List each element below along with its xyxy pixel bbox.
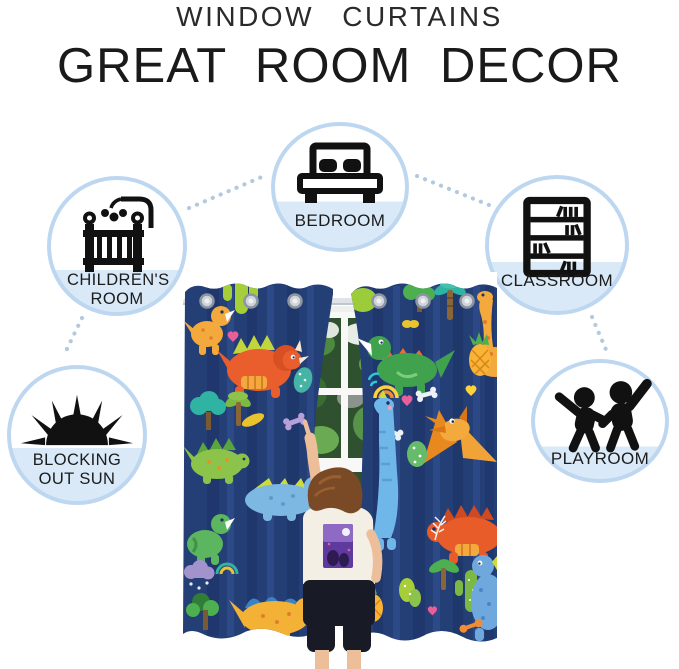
feature-label: PLAYROOM xyxy=(535,449,665,469)
feature-bedroom: BEDROOM xyxy=(271,122,409,252)
crib-icon xyxy=(51,194,183,276)
feature-playroom: PLAYROOM xyxy=(531,359,669,483)
product-photo xyxy=(183,272,497,669)
connector-classroom-playroom xyxy=(592,317,607,352)
child-legs xyxy=(315,650,361,669)
feature-label: CLASSROOM xyxy=(489,271,625,291)
bed-icon xyxy=(275,142,405,208)
feature-childrens-room: CHILDREN'S ROOM xyxy=(47,176,187,316)
page-root: WINDOW CURTAINS GREAT ROOM DECOR BEDROOM xyxy=(0,0,679,669)
connector-bedroom-classroom xyxy=(417,176,489,205)
child-shirt-print xyxy=(323,524,353,568)
bookshelf-icon xyxy=(489,195,625,279)
children-playing-icon xyxy=(535,375,665,455)
sun-icon xyxy=(11,389,143,451)
header-subtitle: WINDOW CURTAINS xyxy=(0,1,679,33)
header: WINDOW CURTAINS GREAT ROOM DECOR xyxy=(0,0,679,94)
page-title: GREAT ROOM DECOR xyxy=(0,38,679,94)
feature-classroom: CLASSROOM xyxy=(485,175,629,315)
feature-blocking-out-sun: BLOCKING OUT SUN xyxy=(7,365,147,505)
spotted-bush-motif xyxy=(407,441,427,467)
feature-label: BEDROOM xyxy=(275,211,405,231)
pineapple-motif xyxy=(469,332,491,376)
feature-label: CHILDREN'S ROOM xyxy=(51,271,183,309)
connector-children-sun xyxy=(64,318,82,355)
connector-children-bedroom xyxy=(189,176,264,208)
feature-label: BLOCKING OUT SUN xyxy=(11,451,143,489)
